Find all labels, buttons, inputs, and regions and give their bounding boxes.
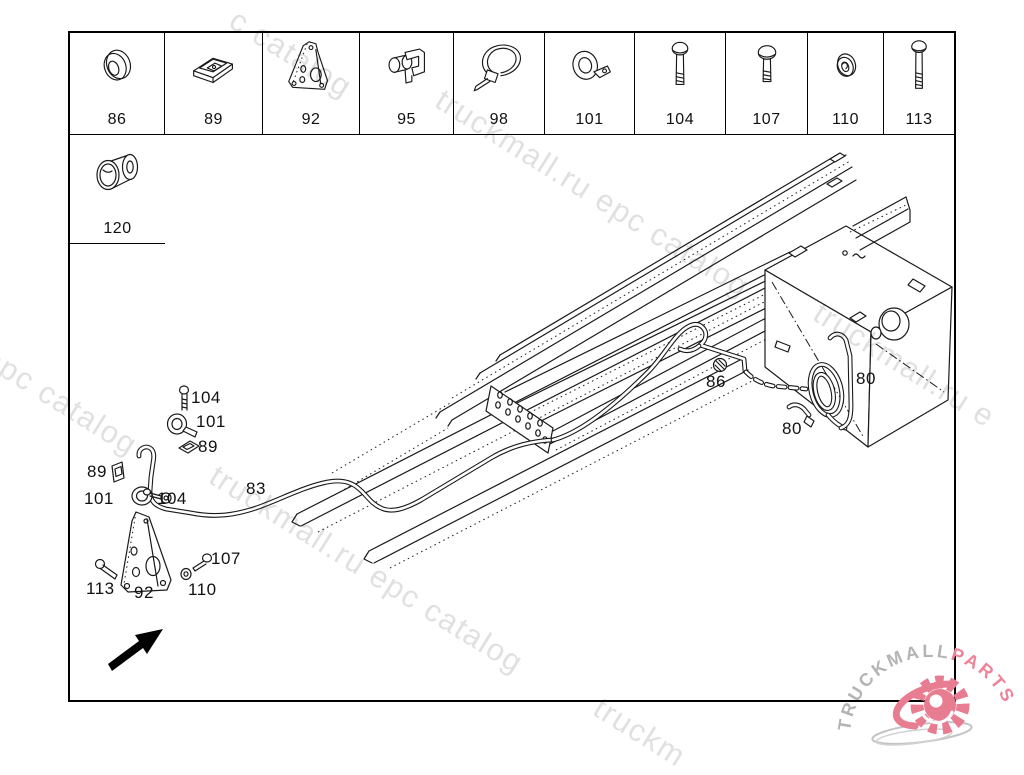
washer-icon <box>811 36 881 98</box>
bracket-icon <box>276 36 346 98</box>
callout-92[interactable]: 92 <box>134 584 154 601</box>
part-cell-107[interactable]: 107 <box>726 33 808 134</box>
part-number: 120 <box>70 220 165 238</box>
bolt-icon <box>645 36 715 98</box>
callout-83[interactable]: 83 <box>246 480 266 497</box>
part-number: 101 <box>545 111 634 129</box>
diagram-frame: 86 89 <box>68 31 956 702</box>
catalog-page: { "strip": { "row1": [ {"num": "86", "pa… <box>0 0 1024 750</box>
watermark: truckm <box>587 690 693 775</box>
callout-104-b[interactable]: 104 <box>157 490 187 507</box>
spacer-sleeve-icon <box>83 137 153 205</box>
bolt-short-icon <box>732 36 802 98</box>
callout-104-a[interactable]: 104 <box>191 389 221 406</box>
callout-80-b[interactable]: 80 <box>782 420 802 437</box>
part-number: 86 <box>70 111 164 129</box>
part-cell-95[interactable]: 95 <box>360 33 454 134</box>
bolt-long-icon <box>884 36 954 98</box>
callout-110[interactable]: 110 <box>188 581 217 598</box>
part-number: 113 <box>884 111 954 129</box>
part-number: 110 <box>808 111 883 129</box>
callout-80-a[interactable]: 80 <box>856 370 876 387</box>
part-number: 95 <box>360 111 453 129</box>
callout-101-b[interactable]: 101 <box>84 490 114 507</box>
callout-107[interactable]: 107 <box>211 550 241 567</box>
parts-strip: 86 89 <box>70 33 954 135</box>
part-cell-113[interactable]: 113 <box>884 33 954 134</box>
part-cell-92[interactable]: 92 <box>263 33 360 134</box>
callout-101-a[interactable]: 101 <box>196 413 226 430</box>
callout-113[interactable]: 113 <box>86 580 115 597</box>
part-cell-86[interactable]: 86 <box>70 33 165 134</box>
grommet-icon <box>82 36 152 98</box>
callout-89-b[interactable]: 89 <box>87 463 107 480</box>
p-clamp-icon <box>555 36 625 98</box>
cable-tie-icon <box>464 36 534 98</box>
part-cell-104[interactable]: 104 <box>635 33 726 134</box>
part-cell-110[interactable]: 110 <box>808 33 884 134</box>
logo-text-parts: PARTS <box>949 644 1020 708</box>
callout-89-a[interactable]: 89 <box>198 438 218 455</box>
part-number: 89 <box>165 111 262 129</box>
part-number: 92 <box>263 111 359 129</box>
part-number: 104 <box>635 111 725 129</box>
pipe-clip-icon <box>372 36 442 98</box>
callout-86[interactable]: 86 <box>706 373 726 390</box>
part-cell-98[interactable]: 98 <box>454 33 545 134</box>
part-cell-89[interactable]: 89 <box>165 33 263 134</box>
part-cell-101[interactable]: 101 <box>545 33 635 134</box>
part-number: 98 <box>454 111 544 129</box>
clip-nut-icon <box>179 36 249 98</box>
part-cell-120[interactable]: 120 <box>70 134 165 244</box>
part-number: 107 <box>726 111 807 129</box>
